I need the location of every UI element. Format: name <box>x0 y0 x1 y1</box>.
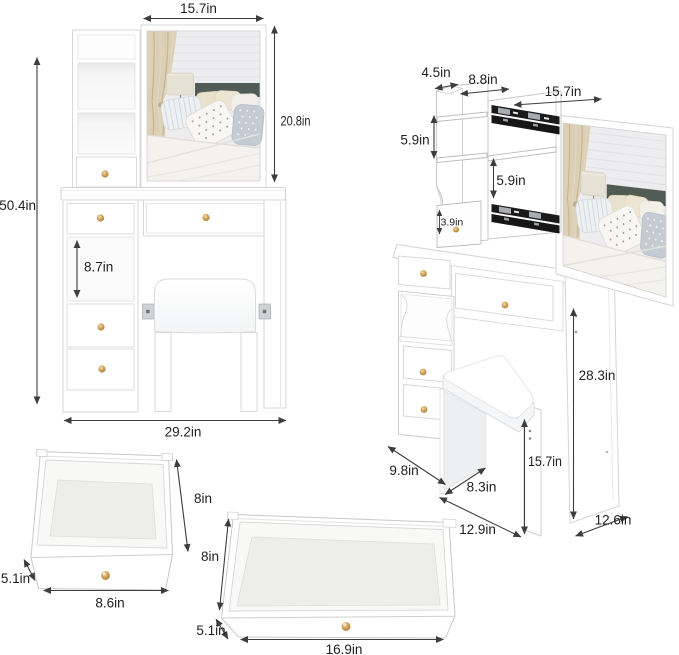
svg-text:50.4in: 50.4in <box>0 198 36 213</box>
svg-text:9.8in: 9.8in <box>389 463 418 478</box>
svg-text:5.9in: 5.9in <box>496 173 525 188</box>
svg-text:8.6in: 8.6in <box>95 596 124 611</box>
svg-text:28.3in: 28.3in <box>579 368 616 383</box>
svg-text:8.3in: 8.3in <box>467 480 497 495</box>
svg-text:15.7in: 15.7in <box>545 84 582 99</box>
svg-text:5.9in: 5.9in <box>400 133 429 148</box>
svg-text:4.5in: 4.5in <box>421 65 450 80</box>
svg-text:12.9in: 12.9in <box>459 522 496 537</box>
svg-text:15.7in: 15.7in <box>528 454 562 469</box>
svg-text:3.9in: 3.9in <box>441 217 464 229</box>
svg-text:8.7in: 8.7in <box>84 260 113 275</box>
svg-text:16.9in: 16.9in <box>326 642 363 655</box>
svg-text:12.6in: 12.6in <box>595 513 632 528</box>
svg-text:5.1in: 5.1in <box>196 623 225 638</box>
svg-text:29.2in: 29.2in <box>165 425 202 440</box>
svg-text:5.1in: 5.1in <box>1 571 30 586</box>
svg-text:8in: 8in <box>194 491 212 506</box>
svg-text:8in: 8in <box>201 549 219 564</box>
svg-text:15.7in: 15.7in <box>180 1 217 16</box>
svg-text:8.8in: 8.8in <box>468 72 497 87</box>
svg-text:20.8in: 20.8in <box>281 114 311 129</box>
